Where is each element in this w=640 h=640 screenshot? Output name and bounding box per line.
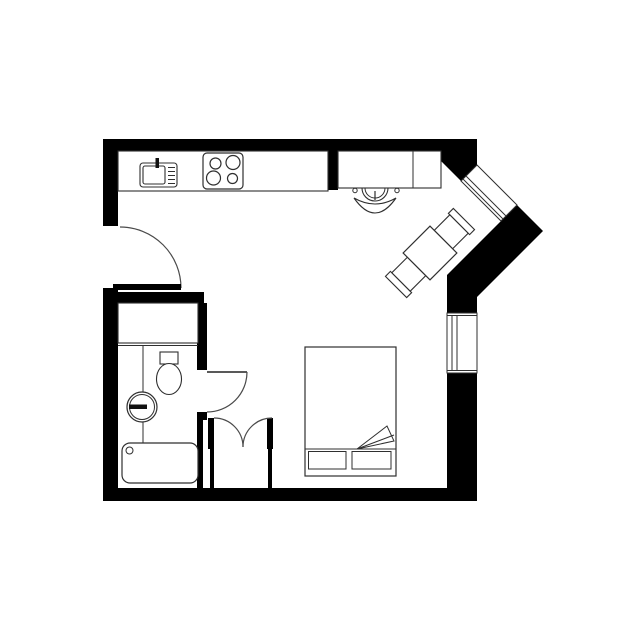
closet-left-leaf: [208, 418, 214, 449]
closet-left-swing-arc: [214, 418, 243, 447]
stove-burner-bottom-right: [228, 174, 238, 184]
stove-burner-bottom-left: [207, 171, 221, 185]
washbasin-faucet: [129, 405, 147, 410]
bathroom-door-stub: [197, 412, 207, 420]
stove-burner-top-left: [210, 158, 221, 169]
pillow-right: [352, 452, 391, 470]
closet-left-jamb-lower: [210, 449, 214, 488]
office-chair-armrest-left: [353, 188, 357, 192]
stove-burner-top-right: [226, 156, 240, 170]
entry-door-leaf: [113, 284, 181, 290]
toilet-bowl: [157, 364, 182, 395]
closet: [208, 418, 273, 488]
bathroom: [118, 303, 198, 483]
kitchen-sink-basin: [143, 166, 165, 184]
office-chair-armrest-right: [395, 188, 399, 192]
diagonal-window-frame: [461, 165, 517, 221]
left-wall-upper: [103, 139, 118, 226]
entry-door-swing-arc: [120, 227, 181, 288]
workspace: [338, 151, 441, 213]
closet-right-jamb-lower: [268, 449, 272, 488]
floorplan-page: [0, 0, 640, 640]
bottom-wall: [103, 488, 477, 501]
kitchen-desk-divider-stub: [328, 151, 338, 190]
bathtub: [122, 443, 198, 483]
bathroom-door-swing-arc: [207, 372, 247, 412]
left-wall-lower: [103, 288, 118, 501]
floor-plan: [0, 0, 640, 640]
pillow-left: [309, 452, 347, 470]
kitchen: [118, 151, 328, 191]
bedroom: [305, 347, 396, 476]
sink-faucet: [156, 158, 160, 168]
toilet-tank: [160, 352, 178, 364]
bathroom-top-wall: [118, 292, 204, 303]
closet-right-leaf: [267, 418, 273, 449]
vanity-counter: [118, 303, 198, 343]
bathtub-drain: [126, 447, 133, 454]
right-wall-lower: [447, 373, 477, 501]
desk: [338, 151, 441, 188]
